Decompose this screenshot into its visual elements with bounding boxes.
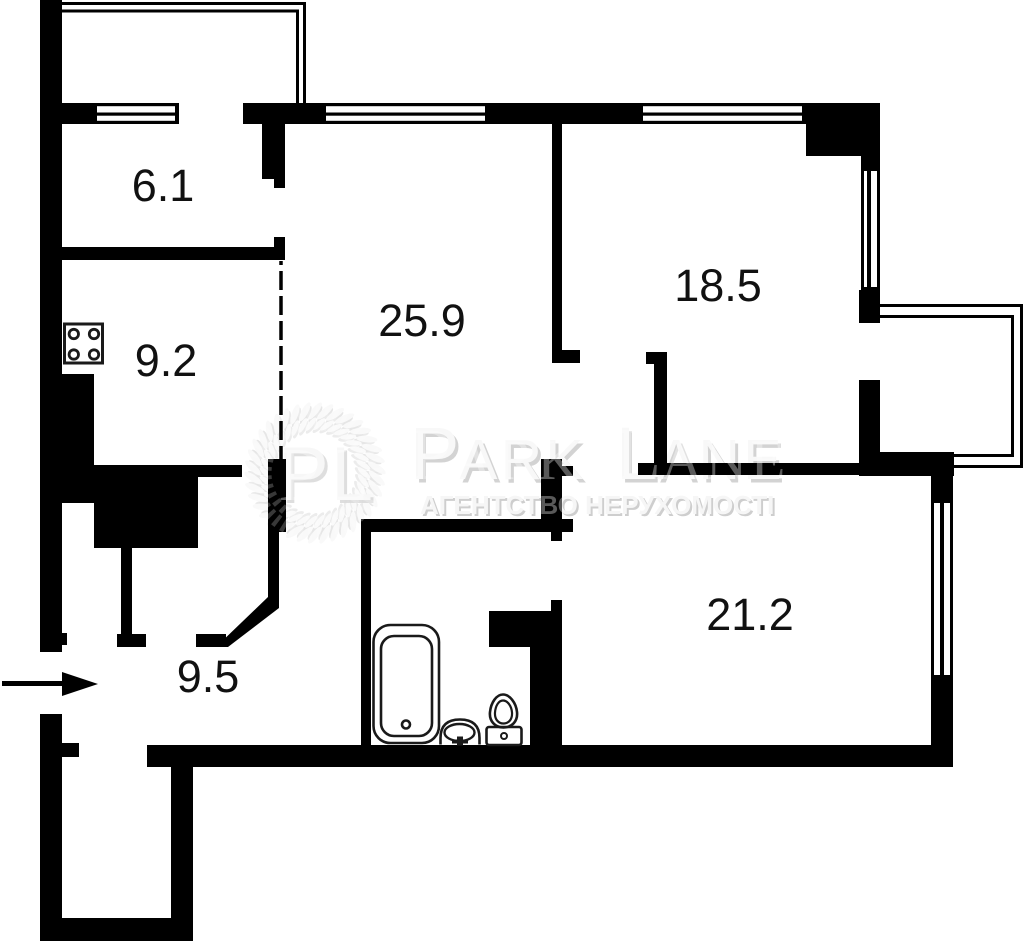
svg-text:6.1: 6.1	[132, 160, 195, 211]
svg-text:9.5: 9.5	[177, 651, 240, 702]
svg-text:PL: PL	[278, 433, 371, 517]
svg-text:АГЕНТСТВО НЕРУХОМОСТІ: АГЕНТСТВО НЕРУХОМОСТІ	[420, 490, 774, 520]
svg-text:25.9: 25.9	[378, 295, 466, 346]
svg-text:18.5: 18.5	[674, 260, 762, 311]
svg-text:9.2: 9.2	[135, 335, 198, 386]
svg-text:21.2: 21.2	[706, 589, 794, 640]
